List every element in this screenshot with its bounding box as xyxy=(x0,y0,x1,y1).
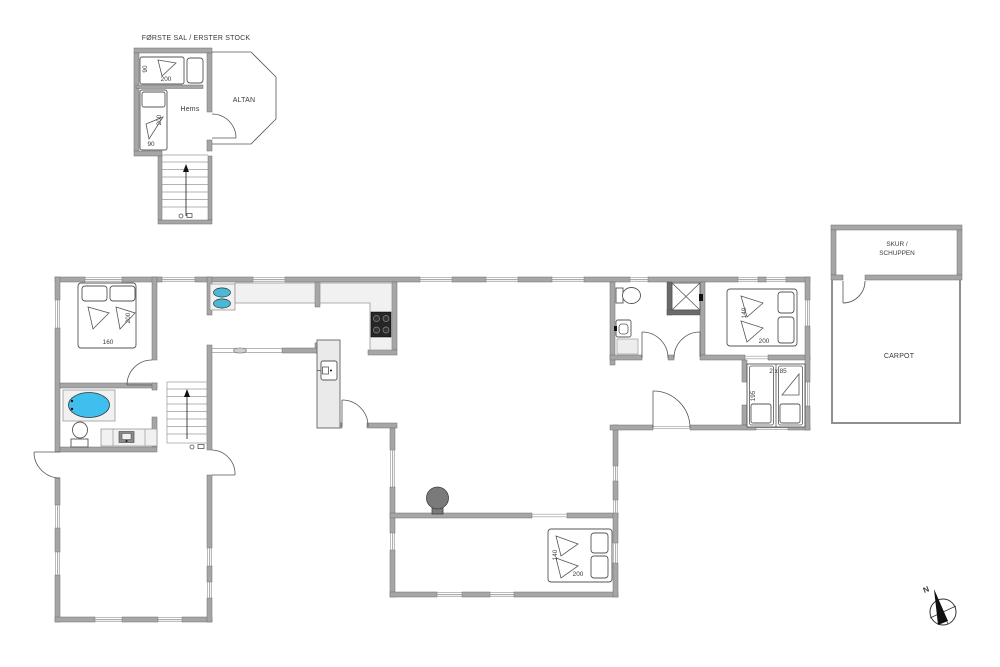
bunk-dim-label: 195 xyxy=(750,390,757,401)
kitchen-sink xyxy=(210,284,235,310)
door-arc xyxy=(674,332,700,358)
window xyxy=(162,278,195,282)
window-handle xyxy=(234,348,247,353)
window xyxy=(614,500,618,513)
bunk-beds: 2 x 85 195 xyxy=(747,364,805,427)
window xyxy=(806,300,810,326)
door-arc xyxy=(34,452,60,478)
hems-label: Hems xyxy=(180,106,199,113)
window xyxy=(437,593,462,597)
door-arc xyxy=(212,114,236,138)
window xyxy=(56,300,60,328)
north-needle xyxy=(934,589,948,625)
hems-side-mattress xyxy=(187,58,203,83)
bed-dim-label: 160 xyxy=(103,339,114,346)
bathroom-west xyxy=(63,390,157,447)
stairs-up-arrow xyxy=(184,389,190,397)
bed-dim-label: 90 xyxy=(147,141,155,148)
kitchen xyxy=(210,283,392,428)
stairs-up-arrow xyxy=(183,164,189,172)
pantry-wall xyxy=(317,340,340,428)
hems-bed-left: 200 90 xyxy=(140,90,167,150)
floor-plan-page: FØRSTE SAL / ERSTER STOCK xyxy=(0,0,1000,667)
kitchen-counter xyxy=(235,283,315,303)
altan-label: ALTAN xyxy=(233,97,256,104)
bath-cabinet xyxy=(617,339,638,354)
stairs-first-floor xyxy=(158,155,212,224)
vanity-counter xyxy=(101,429,157,446)
window xyxy=(420,278,452,282)
shed: SKUR / SCHUPPEN xyxy=(831,225,962,303)
window xyxy=(552,278,584,282)
window xyxy=(253,278,285,282)
window xyxy=(95,618,122,622)
bathroom-east xyxy=(614,282,703,354)
shed-label: SCHUPPEN xyxy=(879,250,915,257)
door-arc xyxy=(642,332,668,358)
window xyxy=(490,593,514,597)
bed-dim-label: 200 xyxy=(125,312,132,323)
toilet-icon xyxy=(616,288,641,304)
window xyxy=(738,278,758,282)
door-arc xyxy=(843,281,865,303)
window xyxy=(208,582,212,598)
bed-dim-label: 200 xyxy=(156,114,163,125)
stairs-ground-floor xyxy=(167,382,207,449)
kitchen-window-wall xyxy=(210,348,282,353)
bed-dim-label: 90 xyxy=(142,65,149,73)
window xyxy=(630,278,648,282)
bedroom-west-bed: 200 160 xyxy=(78,283,136,348)
sink-icon xyxy=(614,320,631,337)
bed-dim-label: 200 xyxy=(573,571,584,578)
window xyxy=(208,548,212,566)
cooktop xyxy=(371,312,391,337)
bedroom-south-bed: 140 200 xyxy=(548,529,612,582)
window xyxy=(56,552,60,575)
window xyxy=(158,618,182,622)
first-floor-plan: FØRSTE SAL / ERSTER STOCK xyxy=(134,35,276,224)
bed-dim-label: 140 xyxy=(741,307,748,318)
hems-bed-top: 90 200 xyxy=(140,57,203,84)
window xyxy=(614,466,618,481)
window xyxy=(486,278,518,282)
window xyxy=(391,450,395,487)
bedroom-east-bed: 140 200 xyxy=(727,289,797,346)
bed-dim-label: 200 xyxy=(161,76,172,83)
door-arc xyxy=(342,400,368,427)
shed-label: SKUR / xyxy=(886,241,908,248)
wood-stove xyxy=(427,487,449,514)
window xyxy=(85,278,122,282)
bed-dim-label: 200 xyxy=(759,338,770,345)
floor-plan-drawing: FØRSTE SAL / ERSTER STOCK xyxy=(0,0,1000,667)
north-label: N xyxy=(922,584,931,595)
window xyxy=(766,278,786,282)
ground-floor-plan: 200 160 xyxy=(34,277,810,622)
spa-tub xyxy=(69,393,110,418)
first-floor-title: FØRSTE SAL / ERSTER STOCK xyxy=(142,35,251,42)
window xyxy=(391,533,395,550)
shower-cabin xyxy=(667,282,703,315)
carport-label: CARPOT xyxy=(884,353,915,360)
window xyxy=(614,543,618,563)
door-arc xyxy=(653,391,690,428)
window xyxy=(806,382,810,406)
compass-rose: N xyxy=(922,584,956,625)
bed-dim-label: 140 xyxy=(552,549,559,560)
window xyxy=(56,505,60,528)
toilet-icon xyxy=(71,422,88,447)
bunk-dim-label: 2 x 85 xyxy=(769,368,787,375)
door-arc xyxy=(212,450,235,475)
door-arc xyxy=(127,360,152,385)
outbuilding: SKUR / SCHUPPEN CARPOT xyxy=(831,225,962,424)
altan-balcony: ALTAN xyxy=(212,52,276,144)
